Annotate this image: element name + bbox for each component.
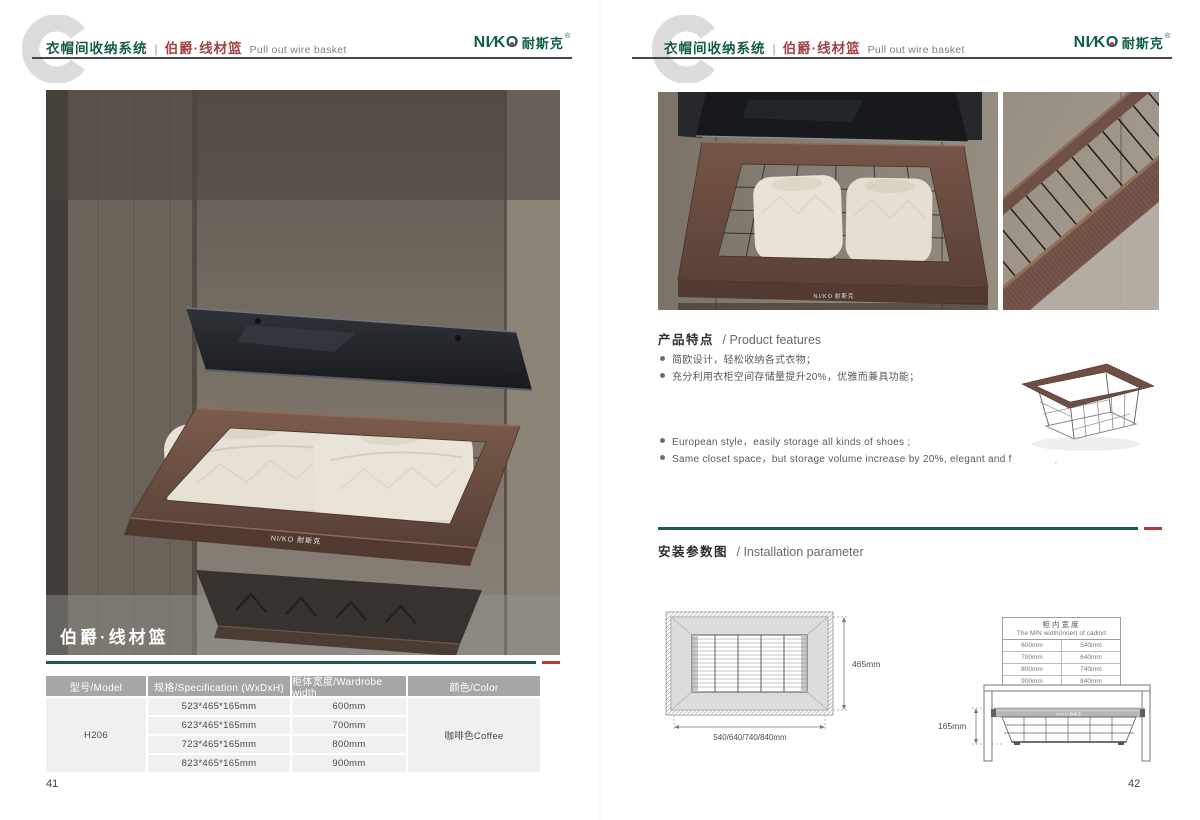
min-width-table: 柜内宽度 The MIN width(inner) of cadinrt 600… bbox=[1002, 617, 1121, 688]
spec-cell-model: H206 bbox=[46, 698, 146, 772]
basket-topview-photo: NI∕KO耐斯克 bbox=[658, 92, 998, 310]
spec-table-header-color: 颜色/Color bbox=[408, 676, 540, 696]
series-title: 伯爵·线材篮 bbox=[165, 37, 243, 57]
page-number: 42 bbox=[1128, 778, 1140, 790]
svg-text:NI∕KO耐斯克: NI∕KO耐斯克 bbox=[814, 292, 855, 300]
series-title: 伯爵·线材篮 bbox=[783, 37, 861, 57]
spec-table-header-spec: 规格/Specification (WxDxH) bbox=[148, 676, 290, 696]
rule-red-bar bbox=[542, 661, 560, 664]
spec-table: 型号/Model 规格/Specification (WxDxH) 柜体宽度/W… bbox=[46, 676, 540, 772]
frame-corner-detail-photo bbox=[1003, 92, 1159, 310]
system-title: 衣帽间收纳系统 bbox=[664, 37, 766, 57]
spec-cell: 600mm bbox=[292, 698, 406, 715]
feature-bullet-cn: 简欧设计，轻松收纳各式衣物； bbox=[660, 351, 816, 366]
page-number: 41 bbox=[46, 778, 58, 790]
spec-cell: 900mm bbox=[292, 755, 406, 772]
series-subtitle: Pull out wire basket bbox=[250, 44, 347, 56]
header-divider: | bbox=[155, 42, 158, 56]
bullet-dot-icon bbox=[660, 373, 665, 378]
header-rule bbox=[32, 57, 572, 59]
feature-bullet-en: European style，easily storage all kinds … bbox=[660, 433, 910, 448]
top-view-diagram: 465mm 540/640/740/840mm bbox=[660, 606, 892, 748]
section-rule bbox=[658, 527, 1162, 530]
page-header: 衣帽间收纳系统 | 伯爵·线材篮 Pull out wire basket bbox=[46, 37, 347, 57]
spec-cell-color: 咖啡色Coffee bbox=[408, 698, 540, 772]
spec-cell: 523*465*165mm bbox=[148, 698, 290, 715]
brand-cn: 耐斯克 bbox=[522, 33, 564, 52]
header-divider: | bbox=[773, 42, 776, 56]
spec-table-header-model: 型号/Model bbox=[46, 676, 146, 696]
basket-render-image bbox=[1012, 336, 1162, 462]
features-heading-cn: 产品特点 bbox=[658, 333, 714, 347]
svg-text:NI∕KO耐斯克: NI∕KO耐斯克 bbox=[1056, 712, 1081, 717]
spec-cell: 823*465*165mm bbox=[148, 755, 290, 772]
section-rule bbox=[46, 661, 560, 664]
series-subtitle: Pull out wire basket bbox=[868, 44, 965, 56]
catalog-spread: 衣帽间收纳系统 | 伯爵·线材篮 Pull out wire basket NI… bbox=[0, 0, 1200, 820]
min-width-row: 800mm 740mm bbox=[1003, 663, 1120, 675]
side-view-diagram: 165mm NI∕KO耐斯克 bbox=[936, 682, 1158, 766]
brand-letter-o: O bbox=[506, 34, 519, 52]
wardrobe-basket-photo: NI∕KO耐斯克 bbox=[46, 90, 560, 655]
spec-table-header-width: 柜体宽度/Wardrobe width bbox=[292, 676, 406, 696]
feature-bullet-cn: 充分利用衣柜空间存储量提升20%，优雅而兼具功能； bbox=[660, 368, 920, 383]
brand-latin: NI∕K bbox=[1074, 34, 1106, 51]
min-width-row: 700mm 640mm bbox=[1003, 651, 1120, 663]
brand-logo: NI∕KO 耐斯克 ® bbox=[1074, 33, 1170, 52]
page-seam bbox=[599, 0, 601, 820]
features-heading-en: / Product features bbox=[723, 333, 822, 347]
installation-heading-cn: 安装参数图 bbox=[658, 545, 728, 559]
brand-cn: 耐斯克 bbox=[1122, 33, 1164, 52]
photo-caption: 伯爵·线材篮 bbox=[60, 623, 169, 648]
spec-cell: 623*465*165mm bbox=[148, 717, 290, 734]
system-title: 衣帽间收纳系统 bbox=[46, 37, 148, 57]
depth-dimension-label: 465mm bbox=[852, 659, 880, 669]
spec-cell: 800mm bbox=[292, 736, 406, 753]
brand-latin: NI∕K bbox=[474, 34, 506, 51]
height-dimension-label: 165mm bbox=[938, 721, 966, 731]
page-header: 衣帽间收纳系统 | 伯爵·线材篮 Pull out wire basket bbox=[664, 37, 965, 57]
installation-heading: 安装参数图 / Installation parameter bbox=[658, 541, 864, 560]
rule-green-bar bbox=[658, 527, 1138, 530]
header-rule bbox=[632, 57, 1172, 59]
bullet-dot-icon bbox=[660, 438, 665, 443]
features-heading: 产品特点 / Product features bbox=[658, 329, 821, 348]
brand-letter-o: O bbox=[1106, 34, 1119, 52]
rule-green-bar bbox=[46, 661, 536, 664]
installation-heading-en: / Installation parameter bbox=[737, 545, 864, 559]
rule-red-bar bbox=[1144, 527, 1162, 530]
feature-bullet-en: Same closet space，but storage volume inc… bbox=[660, 450, 1058, 465]
registered-mark: ® bbox=[1165, 33, 1170, 40]
brand-logo: NI∕KO 耐斯克 ® bbox=[474, 33, 570, 52]
min-width-table-title: 柜内宽度 The MIN width(inner) of cadinrt bbox=[1003, 618, 1120, 640]
spec-cell: 723*465*165mm bbox=[148, 736, 290, 753]
bullet-dot-icon bbox=[660, 356, 665, 361]
min-width-row: 600mm 540mm bbox=[1003, 640, 1120, 651]
width-dimension-label: 540/640/740/840mm bbox=[713, 733, 787, 742]
bullet-dot-icon bbox=[660, 455, 665, 460]
spec-cell: 700mm bbox=[292, 717, 406, 734]
registered-mark: ® bbox=[565, 33, 570, 40]
